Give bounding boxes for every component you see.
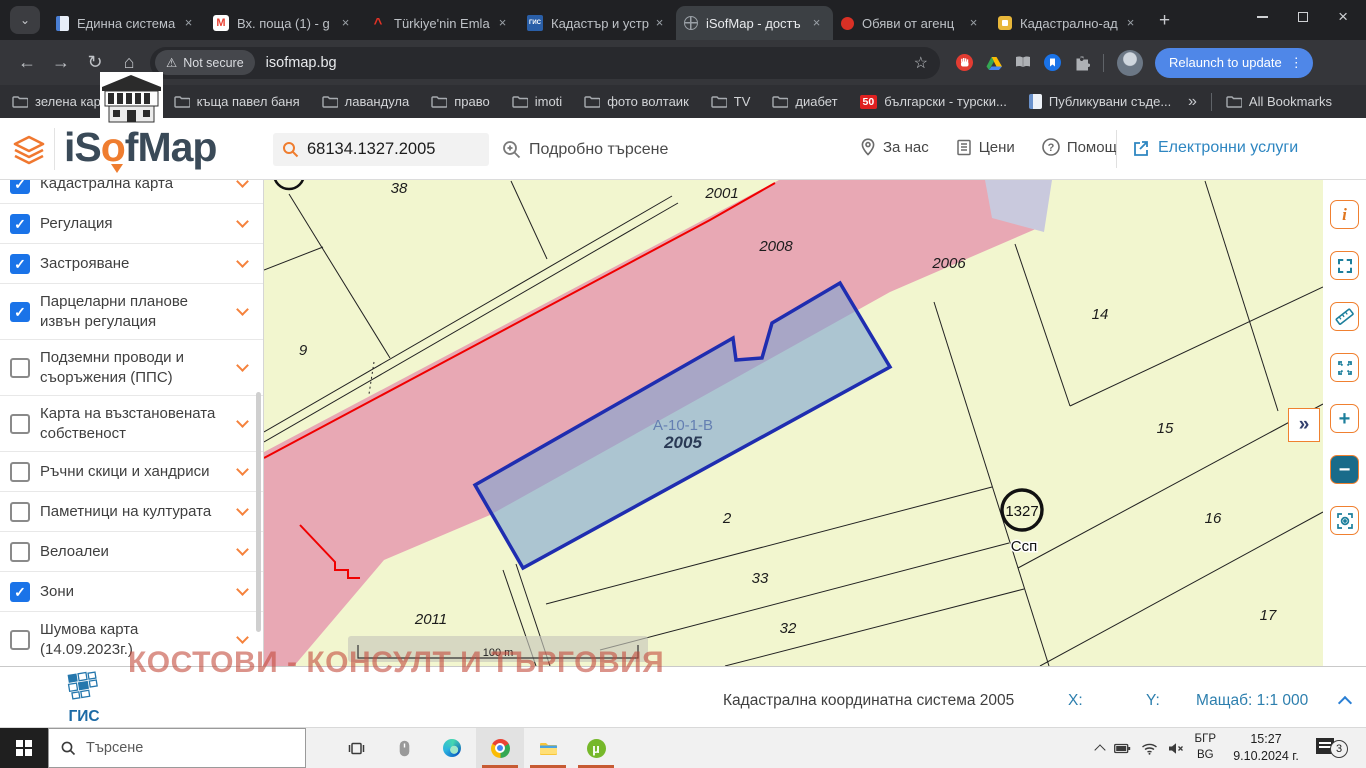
browser-tab-5[interactable]: Обяви от агенц× — [833, 6, 990, 40]
map-label-17: 17 — [1260, 607, 1277, 624]
menu-label: Цени — [979, 139, 1015, 156]
map-label-1327: 1327 — [1005, 503, 1038, 520]
extensions-puzzle-icon[interactable] — [1074, 55, 1090, 71]
map-label-2006: 2006 — [931, 255, 966, 272]
battery-icon[interactable] — [1114, 743, 1131, 754]
map-search-input[interactable]: 68134.1327.2005 — [273, 133, 489, 166]
document-favicon — [56, 16, 69, 31]
map-label-А-10-1-В: А-10-1-В — [653, 417, 713, 434]
address-bar[interactable]: ⚠ Not secure isofmap.bg ☆ — [150, 47, 940, 79]
start-button[interactable] — [0, 728, 48, 768]
double-chevron-icon: » — [1299, 414, 1310, 436]
bookmark-item-8[interactable]: диабет — [772, 94, 837, 109]
layer-label: Подземни проводи и съоръжения (ППС) — [40, 348, 229, 388]
chevron-down-icon[interactable] — [236, 631, 249, 644]
folder-icon — [12, 95, 28, 108]
document-icon — [1029, 94, 1042, 109]
bookmark-item-5[interactable]: imoti — [512, 94, 562, 109]
utorrent-icon: µ — [587, 739, 606, 758]
info-icon: i — [1342, 205, 1347, 225]
layer-row-5[interactable]: Карта на възстановената собственост — [0, 396, 263, 452]
tab-close-icon[interactable]: × — [337, 15, 354, 32]
tab-title: Türkiye'nin Emla — [394, 16, 494, 31]
svg-text:?: ? — [1047, 142, 1054, 154]
mouse-settings-button[interactable] — [380, 728, 428, 768]
browser-tab-0[interactable]: Единна система× — [48, 6, 205, 40]
tab-close-icon[interactable]: × — [180, 15, 197, 32]
not-secure-chip[interactable]: ⚠ Not secure — [155, 50, 255, 75]
divider — [1211, 93, 1212, 111]
sidebar-scrollbar[interactable] — [256, 392, 261, 632]
app-header: iSofMap 68134.1327.2005 Подробно търсене… — [0, 118, 1366, 180]
cadastral-map[interactable]: 3820012008200691415А-10-1-В2005216333220… — [264, 180, 1323, 666]
layer-checkbox[interactable]: ✓ — [10, 214, 30, 234]
browser-tab-1[interactable]: MВх. поща (1) - g× — [205, 6, 362, 40]
chrome-button[interactable] — [476, 728, 524, 768]
layer-label: Зони — [40, 582, 74, 602]
layer-label: Велоалеи — [40, 542, 109, 562]
tab-title: Кадастрално-ад — [1020, 16, 1122, 31]
bookmarks-bar: зелена картакъща павел банялавандулаправ… — [0, 85, 1366, 118]
map-label-32: 32 — [780, 620, 797, 637]
locate-icon — [1336, 512, 1354, 530]
x-coordinate-label: X: — [1068, 692, 1083, 710]
extensions-row — [956, 50, 1143, 76]
folder-icon — [711, 95, 727, 108]
tab-close-icon[interactable]: × — [965, 15, 982, 32]
tab-title: Вх. поща (1) - g — [237, 16, 337, 31]
search-value[interactable]: 68134.1327.2005 — [307, 140, 435, 159]
relaunch-label: Relaunch to update — [1169, 55, 1282, 70]
home-icon[interactable]: ⌂ — [112, 52, 146, 73]
red-dot-favicon — [841, 17, 854, 30]
tab-close-icon[interactable]: × — [651, 15, 668, 32]
menu-dots-icon[interactable]: ⋮ — [1290, 55, 1303, 71]
layer-row-0[interactable]: ✓Кадастрална карта — [0, 180, 263, 204]
header-menu-2[interactable]: ?Помощ — [1042, 138, 1117, 156]
folder-icon — [322, 95, 338, 108]
tab-close-icon[interactable]: × — [494, 15, 511, 32]
map-label-2001: 2001 — [704, 185, 738, 202]
layer-row-1[interactable]: ✓Регулация — [0, 204, 263, 244]
tab-title: Единна система — [77, 16, 180, 31]
menu-label: За нас — [883, 139, 929, 156]
clock[interactable]: 15:279.10.2024 г. — [1226, 731, 1306, 765]
globe-favicon — [684, 16, 698, 30]
isofmap-house-logo — [100, 72, 163, 128]
search-icon — [61, 741, 76, 756]
file-explorer-icon — [539, 741, 558, 756]
layer-row-7[interactable]: Паметници на културата — [0, 492, 263, 532]
reload-icon[interactable]: ↻ — [78, 52, 112, 73]
taskbar-search-placeholder: Търсене — [86, 740, 143, 756]
bookmark-label: фото волтаик — [607, 94, 689, 109]
bookmark-item-0[interactable]: зелена карта — [12, 94, 114, 109]
task-view-icon — [348, 741, 365, 756]
layer-label: Парцеларни планове извън регулация — [40, 292, 229, 332]
map-label-16: 16 — [1205, 510, 1222, 527]
layer-row-9[interactable]: ✓Зони — [0, 572, 263, 612]
expand-panel-button[interactable]: » — [1288, 408, 1320, 442]
browser-tab-4[interactable]: iSofMap - достъ× — [676, 6, 833, 40]
folder-icon — [174, 95, 190, 108]
bookmark-star-icon[interactable]: ☆ — [914, 53, 928, 73]
layer-label: Ръчни скици и хандриси — [40, 462, 209, 482]
isofmap-logo[interactable]: iSofMap — [64, 124, 216, 171]
locate-button[interactable] — [1330, 506, 1359, 535]
layer-row-3[interactable]: ✓Парцеларни планове извън регулация — [0, 284, 263, 340]
bookmark-label: български - турски... — [884, 94, 1007, 109]
browser-tab-bar: ⌄ Единна система×MВх. поща (1) - g×^Türk… — [0, 0, 1366, 40]
relaunch-button[interactable]: Relaunch to update ⋮ — [1155, 48, 1313, 78]
bookmark-item-3[interactable]: лавандула — [322, 94, 410, 109]
browser-tab-3[interactable]: ГИСКадастър и устр× — [519, 6, 676, 40]
bookmark-item-10[interactable]: Публикувани съде... — [1029, 94, 1171, 109]
layer-label: Паметници на културата — [40, 502, 211, 522]
chevron-down-icon[interactable] — [236, 463, 249, 476]
fullscreen-icon — [1336, 359, 1354, 377]
gis-favicon: ГИС — [527, 15, 543, 31]
layer-checkbox[interactable] — [10, 462, 30, 482]
coord-system-label: Кадастрална координатна система 2005 — [723, 692, 1014, 710]
bookmark-label: Публикувани съде... — [1049, 94, 1171, 109]
scale-label: Мащаб: 1:1 000 — [1196, 692, 1308, 710]
notification-badge: 3 — [1330, 740, 1348, 758]
divider — [1103, 54, 1104, 72]
bookmark-label: imoti — [535, 94, 562, 109]
url-text[interactable]: isofmap.bg — [266, 55, 914, 71]
maximize-icon[interactable] — [1298, 12, 1308, 22]
detailed-search-button[interactable]: Подробно търсене — [502, 140, 668, 159]
layers-sidebar: ✓Кадастрална карта✓Регулация✓Застрояване… — [0, 180, 264, 666]
chevron-down-icon[interactable] — [236, 180, 249, 188]
layer-row-6[interactable]: Ръчни скици и хандриси — [0, 452, 263, 492]
browser-tab-2[interactable]: ^Türkiye'nin Emla× — [362, 6, 519, 40]
divider — [1116, 130, 1117, 168]
eservices-link[interactable]: Електронни услуги — [1133, 139, 1298, 157]
watermark: КОСТОВИ - КОНСУЛТ И ТЪРГОВИЯ — [128, 646, 664, 680]
chrome-icon — [491, 739, 510, 758]
avatar[interactable] — [1117, 50, 1143, 76]
menu-label: Помощ — [1067, 139, 1117, 156]
chevron-down-icon[interactable] — [236, 255, 249, 268]
collapse-footer-chevron[interactable] — [1338, 696, 1352, 710]
new-tab-button[interactable]: + — [1159, 10, 1170, 32]
map-toolbar: i+− — [1323, 180, 1366, 666]
bookmark-label: право — [454, 94, 490, 109]
taskbar-search[interactable]: Търсене — [48, 728, 306, 768]
shield-favicon — [998, 16, 1012, 30]
wifi-icon[interactable] — [1141, 742, 1158, 755]
tray-chevron-icon[interactable] — [1094, 744, 1105, 755]
layer-checkbox[interactable] — [10, 414, 30, 434]
all-bookmarks-button[interactable]: All Bookmarks — [1226, 94, 1332, 109]
window-controls: × — [1257, 0, 1366, 34]
map-label-2011: 2011 — [414, 611, 447, 628]
tab-title: Обяви от агенц — [862, 16, 965, 31]
header-menu-1[interactable]: Цени — [956, 139, 1015, 156]
layer-checkbox[interactable] — [10, 630, 30, 650]
bookmarks-overflow-button[interactable]: » — [1188, 93, 1197, 111]
bookmark-item-4[interactable]: право — [431, 94, 490, 109]
tab-search-button[interactable]: ⌄ — [10, 6, 40, 34]
volume-muted-icon[interactable] — [1168, 742, 1185, 755]
layer-label: Карта на възстановената собственост — [40, 404, 229, 444]
external-link-icon — [1133, 140, 1150, 157]
map-label-Ссп: Ссп — [1011, 538, 1037, 555]
help-icon: ? — [1042, 138, 1060, 156]
windows-taskbar: Търсене µ БГРBG 15:279.10.2024 г. 3 — [0, 727, 1366, 768]
measure-button[interactable] — [1330, 302, 1359, 331]
windows-logo-icon — [16, 740, 32, 756]
bookmark-item-7[interactable]: TV — [711, 94, 751, 109]
zoom-in-button[interactable]: + — [1330, 404, 1359, 433]
back-icon[interactable]: ← — [10, 52, 44, 73]
chevron-down-icon[interactable] — [236, 303, 249, 316]
layer-row-4[interactable]: Подземни проводи и съоръжения (ППС) — [0, 340, 263, 396]
divider — [54, 128, 55, 170]
layer-checkbox[interactable]: ✓ — [10, 254, 30, 274]
layer-row-8[interactable]: Велоалеи — [0, 532, 263, 572]
pin-icon — [860, 138, 876, 156]
layers-icon — [12, 135, 46, 165]
forward-icon[interactable]: → — [44, 52, 78, 73]
layer-label: Кадастрална карта — [40, 180, 173, 193]
chevron-down-icon: ⌄ — [20, 13, 30, 27]
layer-row-2[interactable]: ✓Застрояване — [0, 244, 263, 284]
folder-icon — [584, 95, 600, 108]
price-list-icon — [956, 139, 972, 156]
folder-icon — [772, 95, 788, 108]
detailed-search-label: Подробно търсене — [529, 141, 668, 159]
map-label-15: 15 — [1157, 420, 1174, 437]
layer-checkbox[interactable]: ✓ — [10, 582, 30, 602]
50-badge-icon: 50 — [860, 95, 878, 109]
language-indicator[interactable]: БГРBG — [1195, 732, 1216, 763]
measure-icon — [1335, 307, 1354, 326]
select-area-icon — [1338, 259, 1352, 273]
minimize-icon[interactable] — [1257, 16, 1268, 18]
bookmark-extension-icon[interactable] — [1044, 54, 1061, 71]
file-explorer-button[interactable] — [524, 728, 572, 768]
layer-checkbox[interactable] — [10, 358, 30, 378]
layer-checkbox[interactable] — [10, 502, 30, 522]
zoom-in-icon: + — [1339, 409, 1351, 429]
close-icon[interactable]: × — [1338, 12, 1348, 22]
tab-close-icon[interactable]: × — [808, 15, 825, 32]
chevron-down-icon[interactable] — [236, 359, 249, 372]
notification-center[interactable]: 3 — [1316, 736, 1356, 760]
brand-bold: ГИС — [68, 708, 99, 725]
tab-title: Кадастър и устр — [551, 16, 651, 31]
bookmark-label: лавандула — [345, 94, 410, 109]
layer-label: Застрояване — [40, 254, 129, 274]
layer-checkbox[interactable] — [10, 542, 30, 562]
layer-checkbox[interactable]: ✓ — [10, 302, 30, 322]
info-button[interactable]: i — [1330, 200, 1359, 229]
bookmark-item-9[interactable]: 50български - турски... — [860, 94, 1007, 109]
chevron-down-icon[interactable] — [236, 543, 249, 556]
search-icon — [282, 141, 299, 158]
map-label-9: 9 — [299, 342, 308, 359]
header-menu-0[interactable]: За нас — [860, 138, 929, 156]
chevron-down-icon[interactable] — [236, 503, 249, 516]
folder-icon — [512, 95, 528, 108]
select-area-button[interactable] — [1330, 251, 1359, 280]
map-label-2: 2 — [722, 510, 732, 527]
adblock-icon[interactable] — [956, 54, 973, 71]
search-plus-icon — [502, 140, 521, 159]
map-label-14: 14 — [1092, 306, 1109, 323]
browser-toolbar: ← → ↻ ⌂ ⚠ Not secure isofmap.bg ☆ Relaun… — [0, 40, 1366, 85]
map-canvas[interactable]: 3820012008200691415А-10-1-В2005216333220… — [264, 180, 1323, 666]
browser-tab-6[interactable]: Кадастрално-ад× — [990, 6, 1147, 40]
map-label-33: 33 — [752, 570, 769, 587]
reading-list-icon[interactable] — [1015, 56, 1031, 69]
bookmark-label: къща павел баня — [197, 94, 300, 109]
eservices-label: Електронни услуги — [1158, 139, 1298, 157]
chevron-down-icon[interactable] — [236, 583, 249, 596]
map-label-38: 38 — [391, 180, 408, 197]
zoom-out-button[interactable]: − — [1330, 455, 1359, 484]
folder-icon — [1226, 95, 1242, 108]
chevron-down-icon[interactable] — [236, 415, 249, 428]
map-label-2008: 2008 — [758, 238, 793, 255]
bookmark-item-2[interactable]: къща павел баня — [174, 94, 300, 109]
tab-close-icon[interactable]: × — [1122, 15, 1139, 32]
drive-icon[interactable] — [986, 56, 1002, 70]
tab-title: iSofMap - достъ — [706, 16, 808, 31]
y-coordinate-label: Y: — [1146, 692, 1160, 710]
edge-icon — [443, 739, 461, 757]
edge-button[interactable] — [428, 728, 476, 768]
zoom-out-icon: − — [1339, 460, 1351, 480]
map-label-2005: 2005 — [663, 433, 702, 452]
red-caret-favicon: ^ — [370, 15, 386, 31]
folder-icon — [431, 95, 447, 108]
mouse-icon — [399, 740, 410, 757]
layer-label: Регулация — [40, 214, 113, 234]
task-view-button[interactable] — [332, 728, 380, 768]
bookmark-label: диабет — [795, 94, 837, 109]
chevron-down-icon[interactable] — [236, 215, 249, 228]
bookmark-label: TV — [734, 94, 751, 109]
system-tray: БГРBG 15:279.10.2024 г. 3 — [1096, 728, 1366, 768]
layer-checkbox[interactable]: ✓ — [10, 180, 30, 194]
gmail-favicon: M — [213, 15, 229, 31]
utorrent-button[interactable]: µ — [572, 728, 620, 768]
warning-icon: ⚠ — [166, 55, 177, 70]
globe-grid-icon — [62, 670, 106, 702]
not-secure-label: Not secure — [183, 56, 243, 70]
layers-menu-button[interactable] — [12, 135, 46, 170]
fullscreen-button[interactable] — [1330, 353, 1359, 382]
bookmark-item-6[interactable]: фото волтаик — [584, 94, 689, 109]
all-bookmarks-label: All Bookmarks — [1249, 94, 1332, 109]
